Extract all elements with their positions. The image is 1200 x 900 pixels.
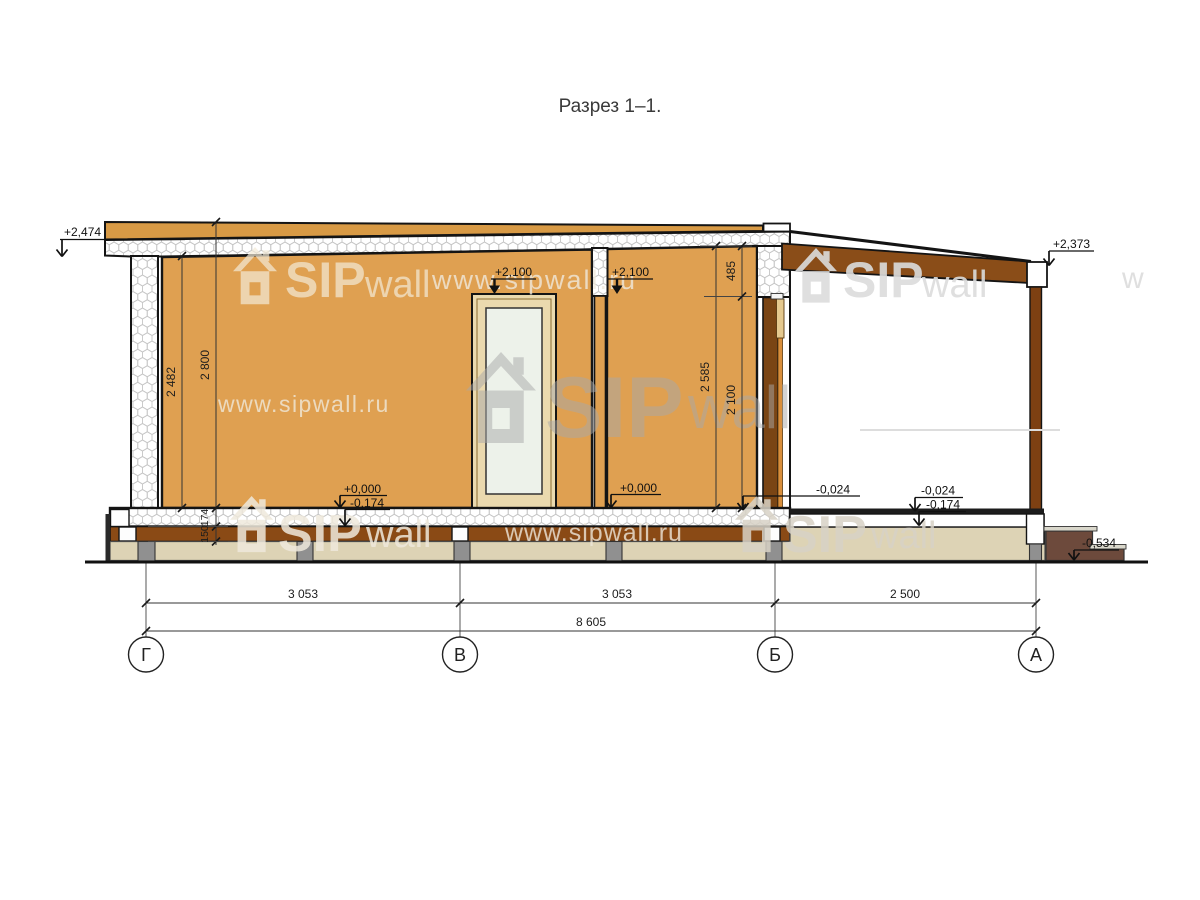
svg-text:wall: wall bbox=[921, 264, 987, 306]
ground-line bbox=[85, 561, 1148, 564]
dim-span-b-a: 2 500 bbox=[890, 587, 920, 601]
svg-text:SIP: SIP bbox=[783, 506, 867, 564]
elevation-label: -0,024 bbox=[816, 483, 850, 497]
floor-beam-band bbox=[110, 527, 790, 542]
axis-label-b: Б bbox=[769, 645, 781, 665]
beam-end-cap bbox=[1027, 262, 1047, 287]
pier bbox=[454, 542, 470, 562]
dim-floor-panel: 174 bbox=[199, 509, 211, 527]
svg-text:SIP: SIP bbox=[285, 252, 366, 308]
elevation-label: -0,174 bbox=[926, 498, 960, 512]
pier bbox=[1030, 544, 1042, 561]
svg-text:wall: wall bbox=[870, 515, 936, 557]
elevation-label: +2,373 bbox=[1053, 237, 1090, 251]
dim-floor-beam: 150 bbox=[199, 525, 211, 543]
dim-lintel: 485 bbox=[724, 261, 738, 281]
porch-door-head-cap bbox=[771, 294, 783, 300]
watermark-url: www.sipwall.ru bbox=[431, 265, 637, 295]
axis-label-a: А bbox=[1030, 645, 1042, 665]
svg-text:wall: wall bbox=[364, 264, 430, 306]
elevation-label: +0,000 bbox=[344, 482, 381, 496]
elevation-label: -0,024 bbox=[921, 484, 955, 498]
porch-door-head-trim bbox=[777, 299, 785, 338]
axis-label-g: Г bbox=[141, 645, 151, 665]
elevation-label: +2,100 bbox=[495, 265, 532, 279]
roof-end-cap bbox=[764, 224, 791, 232]
dim-door-height: 2 100 bbox=[724, 385, 738, 415]
post-footing-block bbox=[1027, 514, 1045, 544]
axis-label-v: В bbox=[454, 645, 466, 665]
step-tread-1 bbox=[1044, 527, 1097, 532]
left-wall-insulation bbox=[131, 256, 158, 527]
left-edge-board bbox=[106, 514, 111, 561]
elevation-label: +0,000 bbox=[620, 481, 657, 495]
svg-text:w: w bbox=[1121, 262, 1144, 295]
dim-interior-height-left: 2 482 bbox=[164, 367, 178, 397]
elevation-label: +2,100 bbox=[612, 265, 649, 279]
drawing-title: Разрез 1–1. bbox=[559, 96, 662, 117]
section-drawing: Разрез 1–1. bbox=[0, 0, 1200, 900]
elevation-label: -0,534 bbox=[1082, 536, 1116, 550]
elevation-label: -0,174 bbox=[350, 496, 384, 510]
axis-grid: 3 053 3 053 2 500 8 605 Г В Б А bbox=[129, 564, 1054, 673]
floor-edge-beam bbox=[111, 510, 130, 527]
svg-text:SIP: SIP bbox=[843, 252, 924, 308]
dim-span-total: 8 605 bbox=[576, 615, 606, 629]
axis-beam-block-v bbox=[452, 527, 468, 541]
dim-span-v-b: 3 053 bbox=[602, 587, 632, 601]
svg-text:SIP: SIP bbox=[278, 505, 362, 563]
watermark-url: www.sipwall.ru bbox=[504, 519, 683, 547]
elevation-label: +2,474 bbox=[64, 225, 101, 239]
dim-span-g-v: 3 053 bbox=[288, 587, 318, 601]
dim-height-total: 2 800 bbox=[198, 350, 212, 380]
drawing-sheet: Разрез 1–1. bbox=[0, 0, 1200, 900]
axis-beam-block-g bbox=[119, 527, 136, 541]
svg-text:SIP: SIP bbox=[545, 360, 684, 456]
floor-insulation bbox=[110, 508, 790, 527]
porch-post bbox=[1030, 287, 1042, 510]
svg-text:wall: wall bbox=[365, 514, 431, 556]
watermark-url: www.sipwall.ru bbox=[217, 391, 390, 417]
pier bbox=[138, 542, 155, 562]
dim-interior-height-right: 2 585 bbox=[698, 362, 712, 392]
